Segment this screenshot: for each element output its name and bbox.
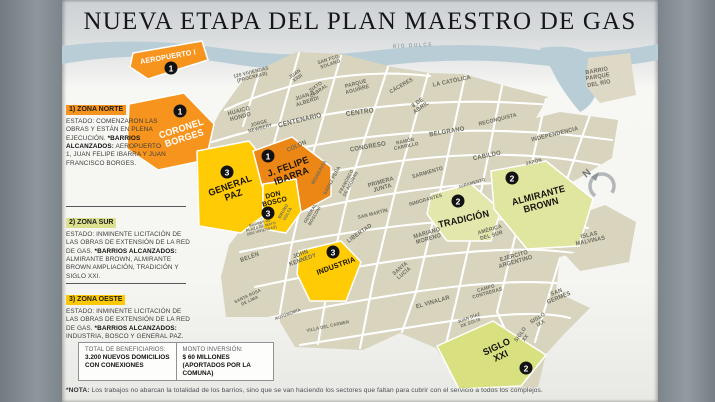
zone-west-barrios-label: *BARRIOS ALCANZADOS:: [95, 325, 177, 332]
footnote-label: *NOTA:: [66, 387, 90, 394]
zone-west-barrios: INDUSTRIA, BOSCO Y GENERAL PAZ.: [66, 333, 184, 340]
zone-north-block: 1) ZONA NORTE ESTADO: COMENZARON LAS OBR…: [66, 98, 166, 168]
footnote: *NOTA: Los trabajos no abarcan la totali…: [66, 387, 652, 394]
zone-west-block: 3) ZONA OESTE ESTADO: INMINENTE LICITACI…: [66, 288, 192, 341]
investment-cell: MONTO INVERSIÓN: $ 60 MILLONES (APORTADO…: [176, 343, 274, 380]
page-title: NUEVA ETAPA DEL PLAN MAESTRO DE GAS: [62, 8, 658, 36]
stats-box: TOTAL DE BENEFICIARIOS: 3.200 NUEVOS DOM…: [78, 342, 274, 381]
zone-general-paz-polygon: [197, 141, 263, 233]
divider: [66, 206, 186, 207]
divider: [66, 283, 186, 284]
beneficiaries-value: 3.200 NUEVOS DOMICILIOS CON CONEXIONES: [85, 354, 171, 370]
zone-south-block: 2) ZONA SUR ESTADO: INMINENTE LICITACIÓN…: [66, 211, 192, 281]
zone-west-body: ESTADO: INMINENTE LICITACIÓN DE LAS OBRA…: [66, 308, 192, 341]
zone-north-heading: 1) ZONA NORTE: [66, 105, 126, 115]
beneficiaries-label: TOTAL DE BENEFICIARIOS:: [85, 347, 171, 353]
beneficiaries-cell: TOTAL DE BENEFICIARIOS: 3.200 NUEVOS DOM…: [79, 343, 176, 380]
zone-west-heading: 3) ZONA OESTE: [66, 295, 125, 305]
zone-south-body: ESTADO: INMINENTE LICITACIÓN DE LAS OBRA…: [66, 231, 192, 281]
zone-south-barrios: ALMIRANTE BROWN, ALMIRANTE BROWN AMPLIAC…: [66, 256, 179, 280]
zone-south-heading: 2) ZONA SUR: [66, 218, 116, 228]
zone-south-barrios-label: *BARRIOS ALCANZADOS:: [95, 248, 177, 255]
investment-value: $ 60 MILLONES (APORTADOS POR LA COMUNA): [183, 354, 269, 378]
zone-north-body: ESTADO: COMENZARON LAS OBRAS Y ESTÁN EN …: [66, 118, 166, 168]
infographic-stage: N NUEVA ETAPA DEL PLAN MAESTRO DE GAS RÍ…: [0, 0, 715, 402]
investment-label: MONTO INVERSIÓN:: [183, 347, 269, 353]
footnote-text: Los trabajos no abarcan la totalidad de …: [92, 387, 543, 394]
